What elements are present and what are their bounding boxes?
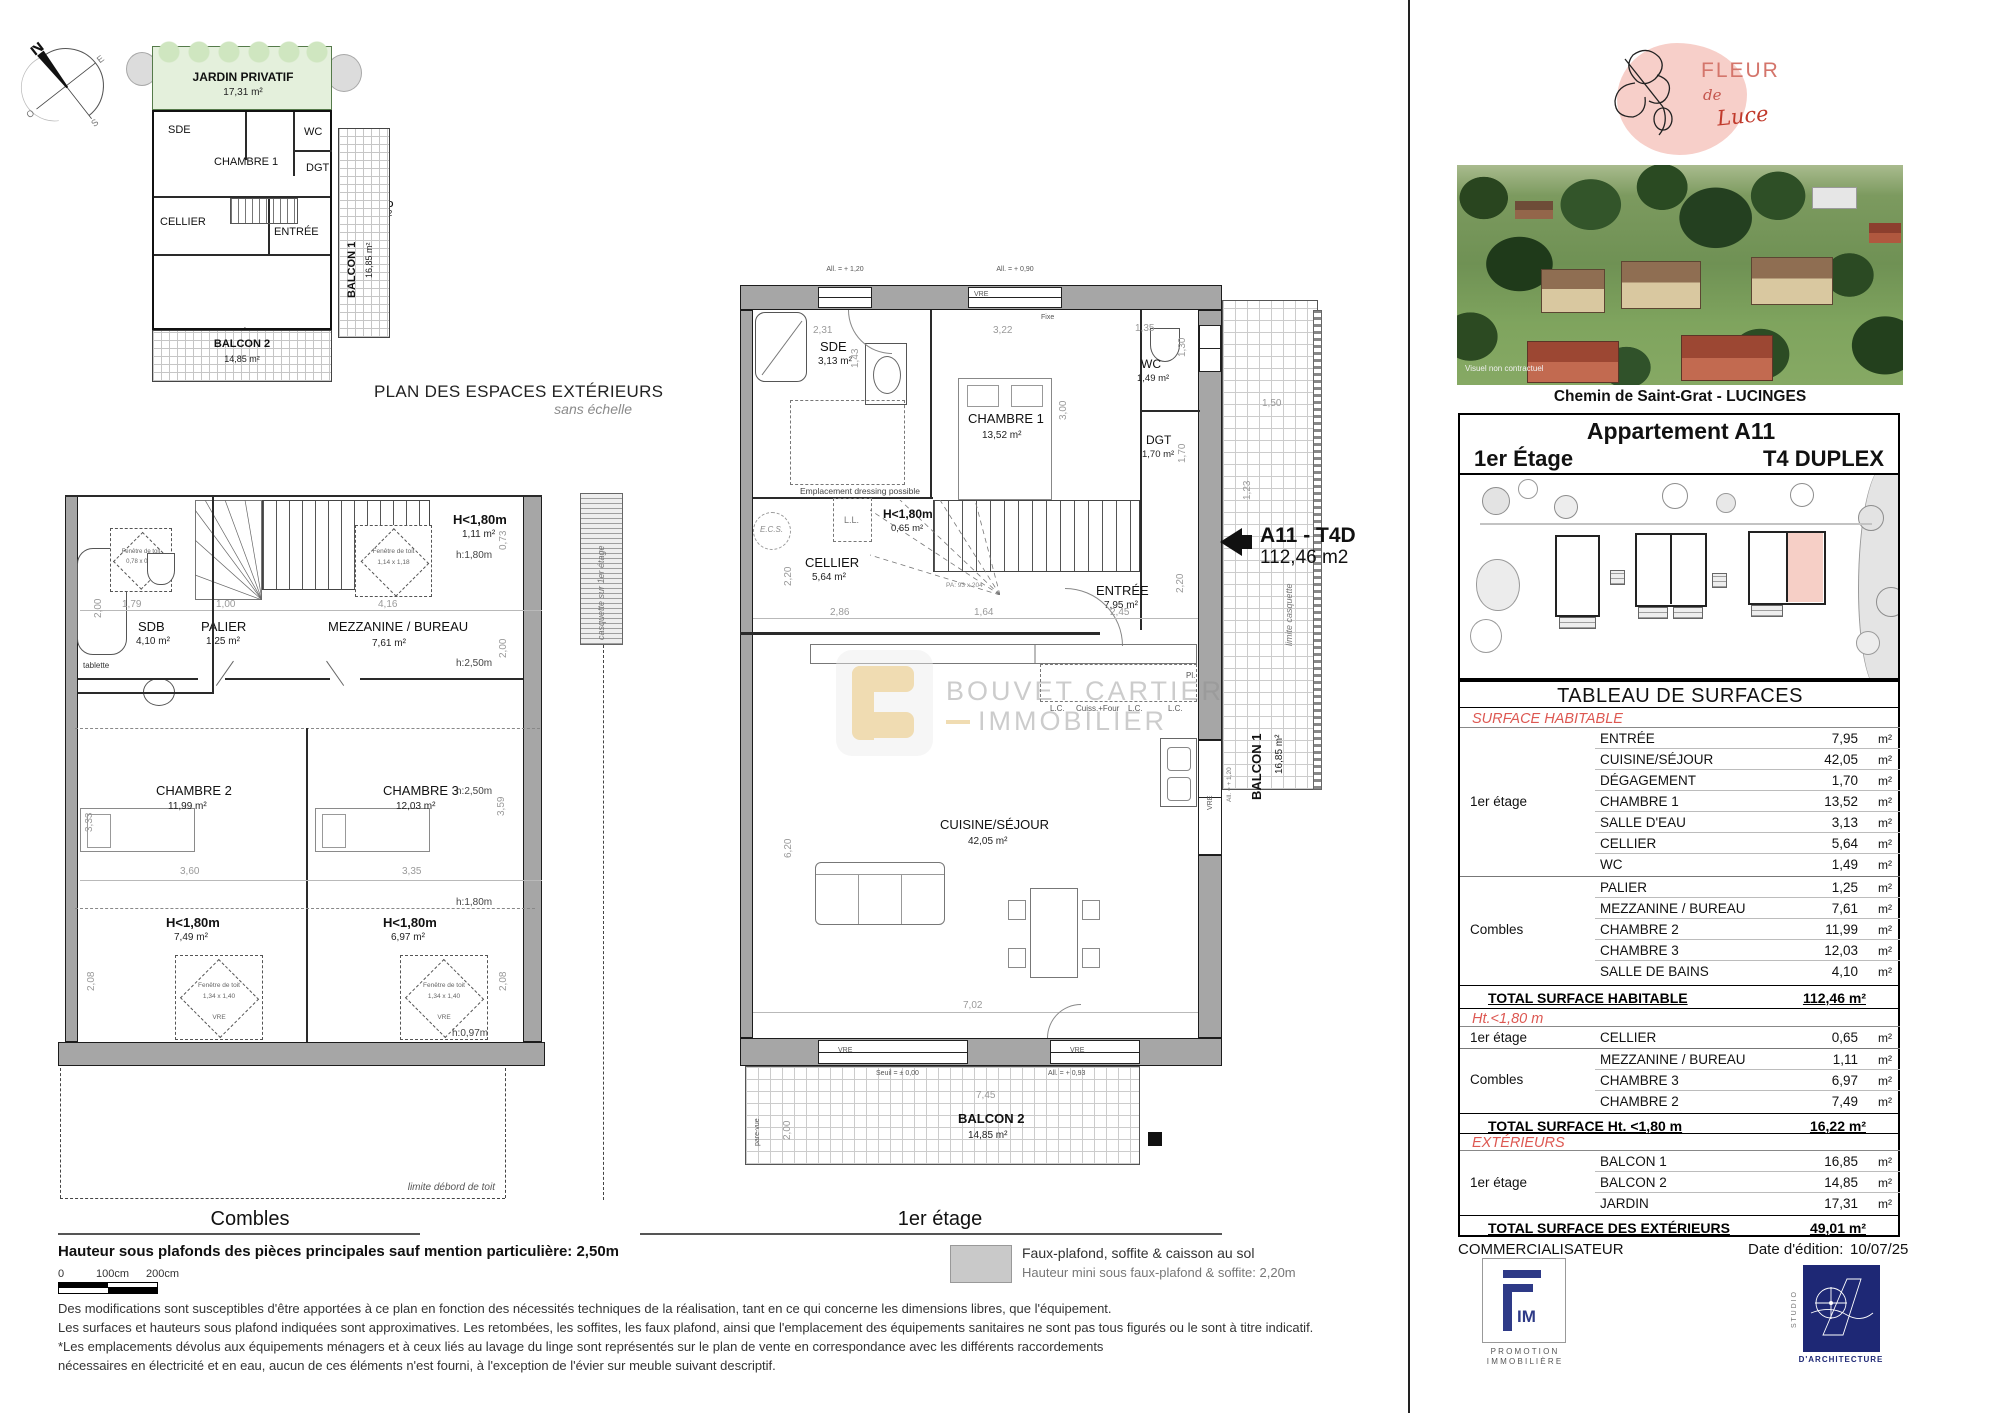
- room-cellier-area: 5,64 m²: [812, 572, 846, 583]
- dim: 2,86: [830, 607, 849, 618]
- scale-bar: 0 100cm 200cm: [58, 1268, 218, 1298]
- brand-luce: Luce: [1716, 102, 1770, 131]
- vre-label: VRE: [1070, 1047, 1084, 1055]
- room-sdb-area: 4,10 m²: [136, 636, 170, 647]
- mini-room-cellier: CELLIER: [160, 216, 206, 228]
- dim: 3,60: [180, 866, 199, 877]
- wall: [58, 1042, 545, 1066]
- table-row: WC1,49m²: [1595, 854, 1900, 875]
- table-row: CHAMBRE 36,97m²: [1595, 1070, 1900, 1091]
- room-wc-area: 1,49 m²: [1137, 374, 1169, 385]
- dim-line: [80, 880, 542, 881]
- watermark-logo-icon: [836, 650, 933, 756]
- site-terrace: [1638, 607, 1668, 619]
- first-floor-title: 1er étage: [620, 1208, 1260, 1230]
- bed: [315, 808, 430, 852]
- mini-room-wc: WC: [304, 126, 322, 138]
- dim: 1,30: [1177, 331, 1188, 357]
- svg-text:S: S: [89, 117, 100, 129]
- total-exterieurs: TOTAL SURFACE DES EXTÉRIEURS49,01 m²: [1460, 1215, 1900, 1237]
- apartment-floor: 1er Étage: [1474, 447, 1573, 472]
- section-exterieurs: EXTÉRIEURS: [1460, 1133, 1900, 1151]
- dim: 2,08: [498, 955, 509, 991]
- legend-label-2: Hauteur mini sous faux-plafond & soffite…: [1022, 1266, 1296, 1281]
- window: [818, 287, 872, 308]
- dim: 3,00: [1058, 390, 1069, 420]
- watermark-dash: [946, 720, 970, 724]
- unit-arrow-icon: [1220, 528, 1242, 556]
- dim: 2,45: [1110, 607, 1129, 618]
- flower-sketch-icon: [1599, 41, 1699, 151]
- dim: 1,64: [974, 607, 993, 618]
- exterior-plan-caption-sub: sans échelle: [374, 402, 632, 418]
- watermark: BOUVET CARTIER IMMOBILIER: [836, 650, 1176, 762]
- table-row: DÉGAGEMENT1,70m²: [1595, 770, 1900, 791]
- vre-label: VRE: [838, 1047, 852, 1055]
- photo-house: [1812, 187, 1857, 209]
- scale-200: 200cm: [146, 1268, 179, 1280]
- apartment-type: T4 DUPLEX: [1763, 447, 1884, 472]
- limite-debord-label: limite débord de toit: [280, 1182, 495, 1193]
- sill-note: All. = + 0,90: [968, 266, 1062, 274]
- dim: 2,08: [86, 955, 97, 991]
- fixe-label: Fixe: [1041, 314, 1054, 322]
- table-row: CHAMBRE 113,52m²: [1595, 791, 1900, 812]
- compass-rose-icon: N E S O: [14, 34, 118, 138]
- unit-arrow-tail: [1241, 535, 1252, 549]
- jardin-trees: [157, 39, 329, 65]
- table-row: SALLE DE BAINS4,10m²: [1595, 961, 1900, 985]
- dim-line: [80, 610, 542, 611]
- note-h097: h:0,97m: [452, 1028, 488, 1039]
- note-h250: h:2,50m: [456, 658, 492, 669]
- tablette-label: tablette: [83, 662, 109, 671]
- brand-de: de: [1703, 87, 1721, 104]
- seuil-note: Seuil = ± 0,00: [876, 1070, 919, 1078]
- group-label: 1er étage: [1470, 1030, 1527, 1045]
- unit-area: 112,46 m2: [1260, 547, 1348, 568]
- table-row: PALIER1,25m²: [1595, 877, 1900, 898]
- photo-chalet: [1751, 257, 1833, 305]
- photo-house: [1527, 341, 1619, 383]
- shower: [755, 312, 807, 382]
- dim: 2,00: [782, 1110, 793, 1140]
- window: [1199, 325, 1221, 372]
- chair: [1082, 900, 1100, 920]
- casquette-label: casquette sur 1er étage: [596, 500, 606, 640]
- legend-label-1: Faux-plafond, soffite & caisson au sol: [1022, 1246, 1254, 1262]
- sill-note: All. = + 1,20: [1226, 742, 1233, 802]
- room-cuisine-sejour: CUISINE/SÉJOUR: [940, 818, 1049, 833]
- table-row: CHAMBRE 312,03m²: [1595, 940, 1900, 961]
- dim: 4,16: [378, 599, 397, 610]
- disclaimer-1: Des modifications sont susceptibles d'êt…: [58, 1302, 1112, 1317]
- limit-line: [60, 1068, 61, 1198]
- brand-fleur: FLEUR: [1701, 59, 1780, 83]
- mini-balcon1-area: 16,85 m²: [364, 192, 374, 278]
- group-label: 1er étage: [1470, 1175, 1527, 1190]
- disclaimer-4: nécessaires en électricité et en eau, au…: [58, 1359, 776, 1374]
- scale-0: 0: [58, 1268, 64, 1280]
- surface-table: TABLEAU DE SURFACES SURFACE HABITABLE 1e…: [1458, 680, 1900, 1237]
- dim: 1,00: [216, 599, 235, 610]
- ll-label: L.L.: [844, 515, 859, 525]
- jardin-privatif: JARDIN PRIVATIF 17,31 m²: [152, 46, 332, 110]
- h180-right: H<1,80m: [383, 916, 437, 931]
- note-h180b: h:1,80m: [456, 897, 492, 908]
- mini-room-dgt: DGT: [306, 162, 329, 174]
- parevue-label: pare-vue: [754, 1106, 762, 1146]
- dim: 3,59: [496, 772, 507, 816]
- svg-text:E: E: [95, 53, 106, 65]
- roof-window: Fenêtre de toit1,34 x 1,40VRE: [175, 955, 263, 1040]
- plan-sheet: N E S O JARDIN PRIVATIF 17,31 m² SDE CHA…: [0, 0, 2000, 1413]
- combles-plan: casquette sur 1er étage Fenêtre de toit …: [40, 420, 640, 1250]
- mini-room-sde: SDE: [168, 124, 191, 136]
- exterior-spaces-plan: JARDIN PRIVATIF 17,31 m² SDE CHAMBRE 1 W…: [120, 40, 645, 435]
- scale-100: 100cm: [96, 1268, 129, 1280]
- photo-house: [1869, 223, 1901, 243]
- sill-note: All. = + 0,93: [1048, 1070, 1085, 1078]
- combles-title: Combles: [40, 1208, 460, 1230]
- wall: [740, 1038, 1222, 1066]
- door-arc: [1047, 1004, 1081, 1038]
- site-stair: [1712, 573, 1727, 588]
- sill-note: All. = + 1,20: [818, 266, 872, 274]
- room-sde-area: 3,13 m²: [818, 356, 852, 367]
- photo-house: [1681, 335, 1773, 381]
- apartment-title: Appartement A11: [1460, 419, 1902, 445]
- door-spec: PA: 93 x 204: [946, 582, 983, 589]
- group-label: 1er étage: [1470, 794, 1527, 809]
- balcon2-label: BALCON 2: [958, 1112, 1024, 1127]
- fim-im: IM: [1517, 1307, 1536, 1326]
- limite-casquette-label: limite casquette: [1284, 574, 1294, 646]
- watermark-line2: IMMOBILIER: [978, 706, 1167, 736]
- dim: 1,79: [122, 599, 141, 610]
- fim-immobiliere: I M M O B I L I È R E: [1470, 1358, 1578, 1367]
- photo-house: [1515, 201, 1553, 219]
- room-palier: PALIER: [201, 620, 246, 635]
- dim: 1,70: [1177, 435, 1188, 463]
- studio-logo: [1803, 1265, 1880, 1352]
- photo-caption: Visuel non contractuel: [1465, 365, 1544, 374]
- room-chambre1: CHAMBRE 1: [968, 412, 1044, 427]
- dim: 7,45: [976, 1090, 995, 1101]
- room-mezzanine: MEZZANINE / BUREAU: [328, 620, 468, 635]
- room-sde: SDE: [820, 340, 847, 355]
- vre-label: VRE: [1207, 770, 1215, 810]
- jardin-label: JARDIN PRIVATIF: [153, 71, 333, 84]
- dim: 0,73: [498, 516, 509, 550]
- note-h180: h:1,80m: [456, 550, 492, 561]
- wall: [65, 495, 542, 497]
- site-unit-a11-highlight: [1788, 533, 1823, 602]
- table-row: JARDIN17,31m²: [1595, 1193, 1900, 1214]
- toilet: [147, 553, 175, 585]
- wall: [1198, 855, 1222, 1038]
- site-terrace: [1673, 607, 1703, 619]
- chair: [1008, 948, 1026, 968]
- unit-code: A11 - T4D: [1260, 524, 1356, 548]
- mini-balcon2-area: 14,85 m²: [152, 354, 332, 364]
- h180-top-area: 1,11 m²: [462, 529, 495, 540]
- exterior-plan-caption: PLAN DES ESPACES EXTÉRIEURS: [374, 382, 640, 401]
- room-chambre2-area: 11,99 m²: [168, 801, 207, 812]
- note-h250: h:2,50m: [456, 786, 492, 797]
- room-entree: ENTRÉE: [1096, 584, 1149, 599]
- table-row: CHAMBRE 211,99m²: [1595, 919, 1900, 940]
- scale-seg: [58, 1288, 158, 1294]
- date-value: 10/07/25: [1850, 1242, 1908, 1259]
- room-cellier: CELLIER: [805, 556, 859, 571]
- dining-table: [1030, 888, 1078, 978]
- disclaimer-2: Les surfaces et hauteurs sous plafond in…: [58, 1321, 1313, 1336]
- balcon1-area: 16,85 m²: [1274, 688, 1285, 774]
- mini-stairs: [230, 198, 298, 224]
- dim: 1,43: [850, 340, 861, 368]
- h180-left-area: 7,49 m²: [174, 932, 208, 943]
- room-sdb: SDB: [138, 620, 165, 635]
- room-wc: WC: [1141, 358, 1161, 371]
- disclaimer-3: *Les emplacements dévolus aux équipement…: [58, 1340, 1103, 1355]
- roof-window: Fenêtre de toit 1,14 x 1,18: [355, 525, 432, 597]
- mini-room-entree: ENTRÉE: [274, 226, 319, 238]
- dim: 6,20: [783, 830, 794, 858]
- apartment-title-box: Appartement A11 1er Étage T4 DUPLEX: [1458, 413, 1900, 475]
- chair: [1008, 900, 1026, 920]
- fim-logo: IM: [1482, 1258, 1566, 1343]
- balcon2-area: 14,85 m²: [968, 1130, 1007, 1141]
- table-row: CUISINE/SÉJOUR42,05m²: [1595, 749, 1900, 770]
- group-label: Combles: [1470, 922, 1523, 937]
- h180-area: 0,65 m²: [891, 524, 923, 535]
- dim: 7,02: [963, 1000, 982, 1011]
- table-row: MEZZANINE / BUREAU1,11m²: [1595, 1049, 1900, 1070]
- svg-text:O: O: [24, 108, 36, 120]
- mini-balcon2-label: BALCON 2: [152, 338, 332, 350]
- aerial-photo: Visuel non contractuel: [1457, 165, 1903, 385]
- dim: 1,50: [1262, 398, 1281, 409]
- h180-under-stairs: H<1,80m: [883, 508, 933, 521]
- limit-line: [505, 1068, 506, 1198]
- table-title: TABLEAU DE SURFACES: [1460, 682, 1900, 708]
- photo-chalet: [1541, 269, 1605, 313]
- right-panel: FLEUR de Luce Visuel non contractuel Che…: [1410, 0, 2000, 1413]
- balcon2: [745, 1066, 1140, 1165]
- sofa: [815, 862, 945, 925]
- site-plan: [1458, 475, 1900, 680]
- wall: [740, 310, 753, 1038]
- window: [1050, 1040, 1140, 1064]
- mini-room-chambre1: CHAMBRE 1: [214, 156, 278, 168]
- site-stair: [1610, 570, 1625, 585]
- room-cuisine-area: 42,05 m²: [968, 836, 1007, 847]
- room-chambre3-area: 12,03 m²: [396, 801, 435, 812]
- table-row: BALCON 214,85m²: [1595, 1172, 1900, 1193]
- dim: 2,20: [1175, 565, 1186, 593]
- date-label: Date d'édition:: [1748, 1242, 1843, 1259]
- table-row: BALCON 116,85m²: [1595, 1151, 1900, 1172]
- room-dgt: DGT: [1146, 434, 1171, 447]
- balcon1-label: BALCON 1: [1250, 680, 1265, 800]
- fleur-de-luce-logo: FLEUR de Luce: [1605, 35, 1765, 167]
- dim: 1,35: [1135, 323, 1154, 334]
- post: [1148, 1132, 1162, 1146]
- bed: [80, 808, 195, 852]
- ecs-label: E.C.S.: [760, 526, 783, 535]
- dim: 2,00: [93, 588, 104, 618]
- table-row: MEZZANINE / BUREAU7,61m²: [1595, 898, 1900, 919]
- dim: 3,22: [993, 325, 1012, 336]
- table-row: SALLE D'EAU3,13m²: [1595, 812, 1900, 833]
- jardin-area: 17,31 m²: [153, 87, 333, 98]
- dim: 2,00: [498, 628, 509, 658]
- ceiling-height-note: Hauteur sous plafonds des pièces princip…: [58, 1244, 619, 1261]
- limit-line: [60, 1198, 505, 1199]
- chair: [1082, 948, 1100, 968]
- dressing-note: Emplacement dressing possible: [800, 487, 920, 497]
- dim: 2,20: [783, 558, 794, 586]
- studio-label: D'ARCHITECTURE: [1795, 1356, 1887, 1365]
- watermark-line1: BOUVET CARTIER: [946, 676, 1224, 706]
- total-surface-habitable: TOTAL SURFACE HABITABLE112,46 m²: [1460, 985, 1900, 1008]
- studio-vertical-label: S T U D I O: [1791, 1268, 1799, 1352]
- mini-balcon1-label: BALCON 1: [346, 178, 358, 298]
- h180-right-area: 6,97 m²: [391, 932, 425, 943]
- site-terrace: [1559, 617, 1596, 629]
- table-row: CELLIER5,64m²: [1595, 833, 1900, 854]
- legend-swatch: [950, 1245, 1012, 1283]
- title-rule: [640, 1233, 1222, 1235]
- total-ht180: TOTAL SURFACE Ht. <1,80 m16,22 m²: [1460, 1113, 1900, 1134]
- site-terrace: [1751, 605, 1783, 617]
- room-dgt-area: 1,70 m²: [1142, 450, 1174, 461]
- photo-chalet: [1621, 261, 1701, 309]
- title-rule: [58, 1233, 420, 1235]
- commercialisateur-label: COMMERCIALISATEUR: [1458, 1242, 1624, 1259]
- address: Chemin de Saint-Grat - LUCINGES: [1457, 388, 1903, 405]
- site-path: [1480, 523, 1872, 525]
- section-surface-habitable: SURFACE HABITABLE: [1460, 709, 1900, 728]
- site-building-3: [1748, 531, 1826, 605]
- room-chambre1-area: 13,52 m²: [982, 430, 1021, 441]
- limit-line: [603, 645, 604, 1200]
- table-row: CHAMBRE 27,49m²: [1595, 1091, 1900, 1112]
- dim: 2,31: [813, 325, 832, 336]
- dim: 1,23: [1242, 472, 1253, 500]
- table-row: CELLIER0,65m²: [1595, 1027, 1900, 1048]
- room-chambre3: CHAMBRE 3: [383, 784, 459, 799]
- dim: 3,35: [402, 866, 421, 877]
- site-building-1: [1555, 535, 1600, 617]
- group-label: Combles: [1470, 1072, 1523, 1087]
- room-chambre2: CHAMBRE 2: [156, 784, 232, 799]
- dim-line: [753, 1012, 1198, 1013]
- stairs-winder: [195, 500, 262, 600]
- table-row: ENTRÉE7,95m²: [1595, 728, 1900, 749]
- h180-left: H<1,80m: [166, 916, 220, 931]
- dressing-zone: [790, 400, 905, 485]
- site-building-2: [1635, 533, 1707, 607]
- wall: [523, 495, 542, 1042]
- section-ht180: Ht.<1,80 m: [1460, 1008, 1900, 1027]
- room-mezzanine-area: 7,61 m²: [372, 638, 406, 649]
- fim-promotion: P R O M O T I O N: [1470, 1348, 1578, 1357]
- dim: 3,33: [84, 788, 95, 832]
- vre-label: VRE: [974, 291, 988, 299]
